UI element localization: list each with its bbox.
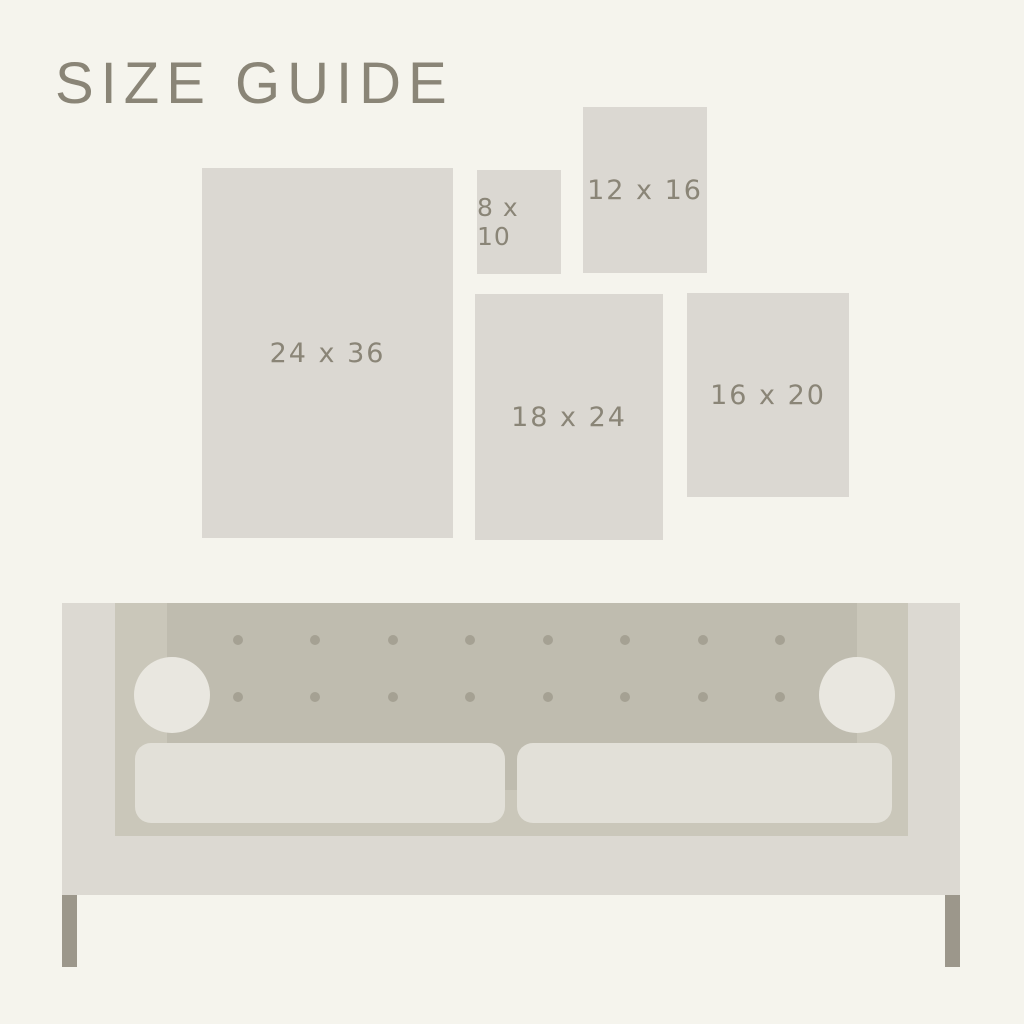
sofa-leg-left [62,895,77,967]
tufting-button [543,692,553,702]
tufting-button [620,635,630,645]
tufting-button [543,635,553,645]
tufting-button-row [233,635,785,645]
seat-cushion-right [517,743,892,823]
bolster-pillow-left [134,657,210,733]
sofa-illustration [0,0,1024,1024]
tufting-button [775,692,785,702]
tufting-button [775,635,785,645]
tufting-button [465,692,475,702]
tufting-button [233,635,243,645]
sofa-leg-right [945,895,960,967]
tufting-button [698,635,708,645]
tufting-button [698,692,708,702]
tufting-button [310,635,320,645]
bolster-pillow-right [819,657,895,733]
tufting-button [233,692,243,702]
tufting-button [310,692,320,702]
tufting-button [620,692,630,702]
tufting-button [388,692,398,702]
seat-cushion-left [135,743,505,823]
size-guide-graphic: SIZE GUIDE 24 x 36 8 x 10 12 x 16 18 x 2… [0,0,1024,1024]
tufting-button [388,635,398,645]
tufting-button [465,635,475,645]
tufting-button-row [233,692,785,702]
